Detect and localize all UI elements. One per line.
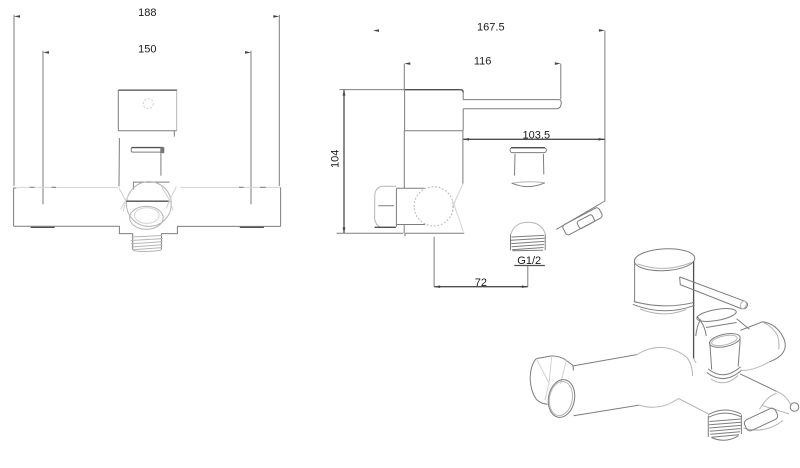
svg-text:116: 116 [474, 55, 492, 67]
svg-text:72: 72 [475, 277, 487, 289]
svg-text:150: 150 [138, 43, 156, 55]
svg-text:167.5: 167.5 [477, 22, 505, 34]
svg-text:188: 188 [138, 7, 156, 19]
svg-text:104: 104 [329, 150, 341, 168]
